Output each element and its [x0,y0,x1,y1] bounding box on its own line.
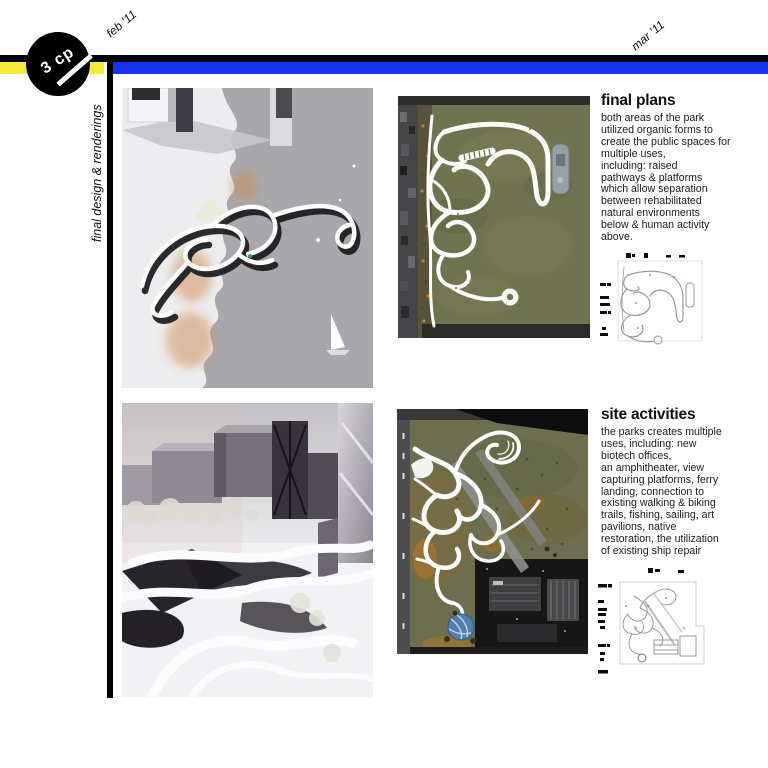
industrial-shipyard [475,559,588,654]
rendering-aerial-perspective [122,88,373,388]
bottom-dark-strip [422,324,590,338]
site-plan-final [398,96,590,338]
portfolio-page: { "timeline": { "badge_label": "3 cp", "… [0,0,768,768]
ship [552,144,569,194]
site-plan-activities [397,409,588,654]
final-plans-heading: final plans [601,92,753,110]
teal-marker [248,254,252,258]
plan-diagram-thumbnail-bottom [596,566,708,678]
vertical-rule [107,62,113,698]
section-final-plans: final plans both areas of the park utili… [601,92,753,244]
rendering-ground-perspective [122,403,373,697]
section-vertical-title: final design & renderings [90,94,104,242]
plan-diagram-thumbnail-top [598,253,704,345]
month-label-feb: feb '11 [104,7,140,40]
timeline-bar-black [0,55,768,62]
urban-edge-strip [398,105,418,338]
final-plans-body: both areas of the park utilized organic … [601,113,753,244]
bottom-strip [410,647,588,654]
left-road [397,420,410,654]
section-site-activities: site activities the parks creates multip… [601,406,753,558]
top-road-strip [398,96,590,105]
timeline-bar-blue [113,62,768,74]
site-activities-body: the parks creates multiple uses, includi… [601,427,753,558]
diagram-panel [618,261,702,341]
site-activities-heading: site activities [601,406,753,424]
amphitheater-dome [448,614,474,640]
month-label-mar: mar '11 [629,18,668,54]
